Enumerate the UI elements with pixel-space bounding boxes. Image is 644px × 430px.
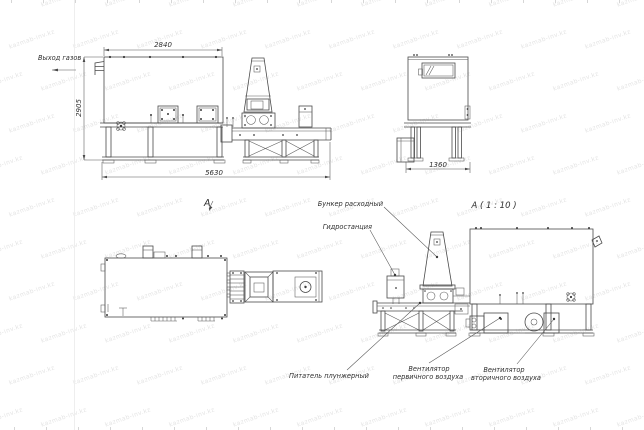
gas-outlet-label: Выход газов [38, 54, 81, 62]
feeder-label: Питатель плунжерный [289, 372, 370, 380]
bottom-rack-1 [151, 317, 177, 321]
plan-view: А [101, 198, 322, 321]
callout-leaders [347, 207, 555, 370]
conveyor-beam [221, 117, 331, 142]
feeder-frame [243, 140, 319, 163]
detail-hopper-tower [420, 232, 455, 303]
detail-view: А ( 1 : 10 ) [289, 200, 602, 382]
plan-hopper [245, 272, 273, 302]
dim-1360: 1360 [429, 161, 447, 169]
drawing-sheet: kazmab-inv.kzkazmab-inv.kzkazmab-inv.kzk… [0, 0, 644, 430]
hopper-label: Бункер расходный [318, 200, 384, 208]
technical-drawing: 2840 2905 5630 Выход газов [0, 0, 644, 430]
dim-2905: 2905 [75, 99, 83, 117]
primary-fan-label-1: Вентилятор [408, 365, 449, 373]
secondary-fan-label-2: вторичного воздуха [471, 374, 541, 382]
plan-feeder-drive [273, 271, 322, 302]
end-post-box [299, 106, 312, 127]
hydro-label: Гидростанция [323, 223, 372, 231]
feeder-connector [453, 288, 470, 314]
end-view [397, 54, 471, 162]
dim-5630: 5630 [205, 169, 223, 177]
plan-view-label: А [203, 198, 211, 209]
mounted-box-2 [197, 106, 218, 123]
detail-conveyor [373, 301, 470, 336]
feeder-box [242, 113, 275, 128]
dim-2840: 2840 [154, 41, 172, 49]
bottom-rack-2 [198, 317, 215, 321]
secondary-fan-label-1: Вентилятор [483, 366, 524, 374]
mounted-box-1 [158, 106, 178, 123]
detail-title: А ( 1 : 10 ) [470, 201, 516, 211]
end-view-dimensions: 1360 [406, 161, 470, 173]
plan-conveyor [227, 271, 244, 303]
primary-fan-label-2: первичного воздуха [393, 373, 463, 381]
side-view-dimensions: 2840 2905 5630 Выход газов [38, 41, 330, 180]
side-view [95, 56, 331, 163]
hopper-tower [244, 58, 272, 112]
